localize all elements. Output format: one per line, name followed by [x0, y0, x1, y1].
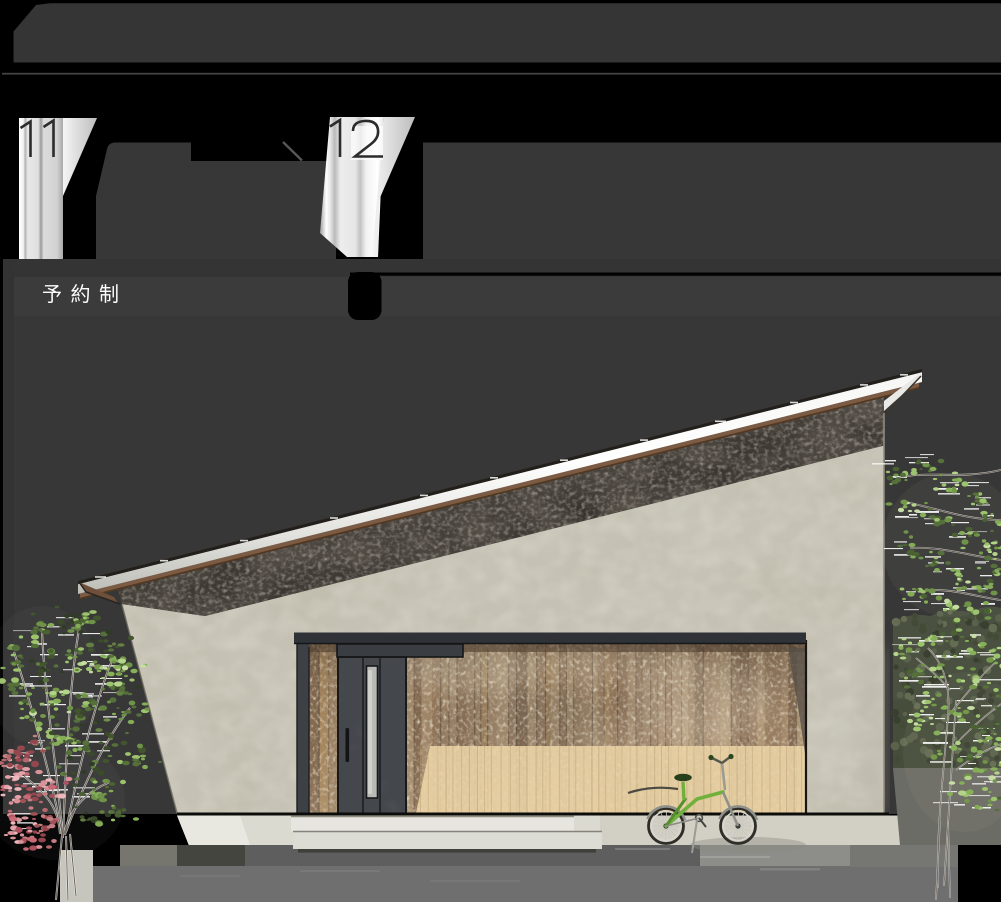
svg-text:予約制: 予約制 — [42, 283, 128, 306]
